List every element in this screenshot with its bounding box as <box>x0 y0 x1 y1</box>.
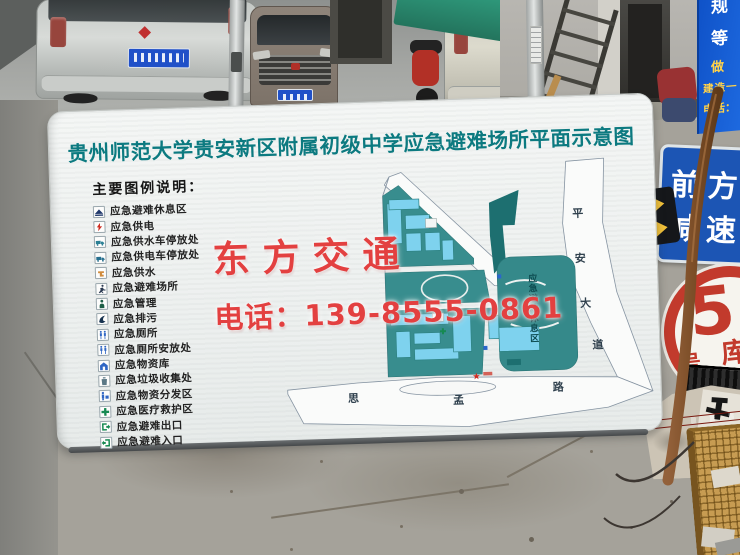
road-label-char: 大 <box>580 296 591 310</box>
legend-item-label: 应急避难出口 <box>117 417 183 434</box>
power-supply-icon <box>93 221 105 233</box>
street-photo-scene: 规 等 做 建造一 电话： 前方 减速 5 号 库 <box>0 0 740 555</box>
evacuation-map-board: 贵州师范大学贵安新区附属初级中学应急避难场所平面示意图 主要图例说明： 应急避难… <box>47 93 663 450</box>
legend-item-label: 应急厕所安放处 <box>114 340 191 357</box>
marker-caption-smudge <box>483 372 492 376</box>
ad-sign-char: 规 <box>711 0 728 18</box>
legend-item-label: 应急避难休息区 <box>110 201 187 218</box>
suv-front <box>250 6 338 106</box>
legend-item-label: 应急避难场所 <box>112 279 178 296</box>
rest-area-char: 区 <box>530 333 539 344</box>
ad-sign-char: 做 <box>711 56 724 76</box>
watermark-company: 东方交通 <box>212 219 563 284</box>
dark-building <box>507 359 521 365</box>
sewage-icon <box>96 313 108 325</box>
legend-item-label: 应急管理 <box>113 295 157 311</box>
wheel <box>63 93 97 103</box>
motorcycle-body <box>412 50 439 86</box>
license-plate <box>277 89 313 101</box>
van-rear-window <box>48 0 246 23</box>
supplies-depot-icon <box>98 359 110 371</box>
garbage-icon <box>98 375 110 387</box>
location-star: ★ <box>472 372 480 382</box>
water-supply-icon <box>95 267 107 279</box>
entrance-icon <box>100 436 112 448</box>
utility-pole-left <box>228 0 245 116</box>
water-truck-icon <box>94 236 106 248</box>
legend-item-label: 应急避难入口 <box>117 433 183 450</box>
map-marker <box>483 346 487 350</box>
license-plate <box>128 48 190 69</box>
management-icon <box>96 298 108 310</box>
power-truck-icon <box>94 252 106 264</box>
legend-item-label: 应急供电 <box>110 218 154 234</box>
supplies-distribution-icon <box>99 390 111 402</box>
legend-item-label: 应急供水 <box>112 264 156 280</box>
taillight <box>50 17 66 47</box>
road-label-char: 路 <box>553 379 565 393</box>
windshield <box>257 15 333 45</box>
medical-icon <box>99 405 111 417</box>
shelter-rest-icon <box>93 206 105 218</box>
toilet-icon <box>97 329 109 341</box>
alley-doorway <box>330 0 392 64</box>
road-label-char: 安 <box>574 251 585 265</box>
road-label-char: 道 <box>592 337 603 351</box>
road-label-char: 平 <box>572 207 583 220</box>
road-simeng-shape <box>287 371 653 432</box>
legend-heading: 主要图例说明： <box>92 173 283 199</box>
pole-sticker <box>530 26 542 64</box>
ad-sign-char: 等 <box>711 23 728 49</box>
shelter-site-icon <box>95 282 107 294</box>
suv-logo <box>291 63 300 70</box>
road-label-char: 孟 <box>453 393 464 407</box>
road-label-char: 思 <box>348 392 359 405</box>
legend-item-label: 应急厕所 <box>114 326 158 342</box>
minivan-left <box>35 0 258 109</box>
watermark: 东方交通 电话：139-8555-0861 <box>212 219 564 338</box>
legend-item-label: 应急物资库 <box>115 356 170 373</box>
red-motorcycle <box>406 30 448 110</box>
grille <box>259 55 331 85</box>
exit-icon <box>100 421 112 433</box>
toilet-place-icon <box>97 344 109 356</box>
legend-item-label: 应急供电车停放处 <box>111 247 199 265</box>
legend-item-label: 应急排污 <box>113 310 157 326</box>
